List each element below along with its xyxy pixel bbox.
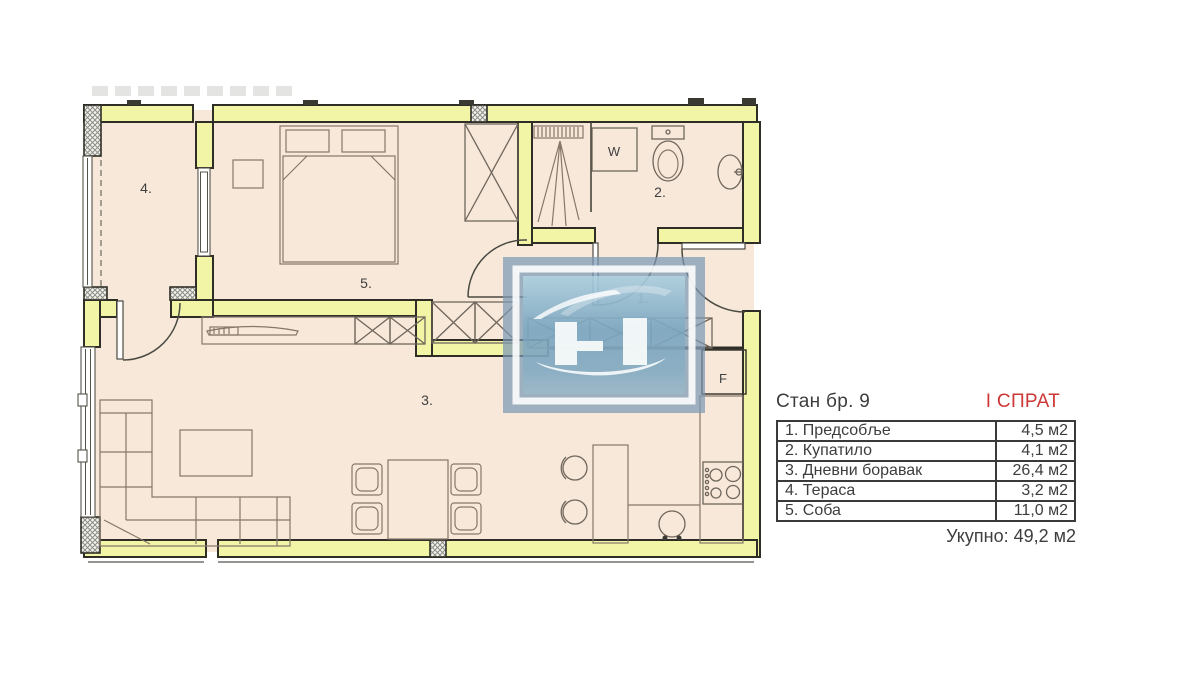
room-label-terrace: 4.	[140, 180, 152, 196]
room-name: 3. Дневни боравак	[777, 461, 996, 481]
panel-header: Стан бр. 9 I СПРАТ	[776, 391, 1076, 413]
washing-machine-label: W	[608, 144, 621, 159]
area-panel: Стан бр. 9 I СПРАТ 1. Предсобље 4,5 м2 2…	[776, 391, 1076, 547]
room-area: 4,1 м2	[996, 441, 1075, 461]
apartment-title: Стан бр. 9	[776, 391, 870, 413]
room-area: 26,4 м2	[996, 461, 1075, 481]
table-row: 1. Предсобље 4,5 м2	[777, 421, 1075, 441]
floor-plan-drawing: W	[0, 0, 1200, 675]
room-label-bathroom: 2.	[654, 184, 666, 200]
room-label-living: 3.	[421, 392, 433, 408]
terrace-balcony-door-window	[198, 168, 210, 256]
room-name: 1. Предсобље	[777, 421, 996, 441]
total-area: Укупно: 49,2 м2	[776, 526, 1076, 547]
living-room-window	[78, 347, 95, 517]
watermark-logo	[503, 257, 705, 413]
room-name: 2. Купатило	[777, 441, 996, 461]
area-table: 1. Предсобље 4,5 м2 2. Купатило 4,1 м2 3…	[776, 420, 1076, 522]
room-name: 5. Соба	[777, 501, 996, 521]
room-area: 11,0 м2	[996, 501, 1075, 521]
wall-ticks	[127, 98, 756, 105]
table-row: 5. Соба 11,0 м2	[777, 501, 1075, 521]
table-row: 3. Дневни боравак 26,4 м2	[777, 461, 1075, 481]
floor-label: I СПРАТ	[986, 391, 1076, 413]
room-label-bedroom: 5.	[360, 275, 372, 291]
room-area: 4,5 м2	[996, 421, 1075, 441]
floor-plan-page: W	[0, 0, 1200, 675]
table-row: 4. Тераса 3,2 м2	[777, 481, 1075, 501]
table-row: 2. Купатило 4,1 м2	[777, 441, 1075, 461]
room-area: 3,2 м2	[996, 481, 1075, 501]
room-name: 4. Тераса	[777, 481, 996, 501]
shaft-label: F	[719, 371, 727, 386]
